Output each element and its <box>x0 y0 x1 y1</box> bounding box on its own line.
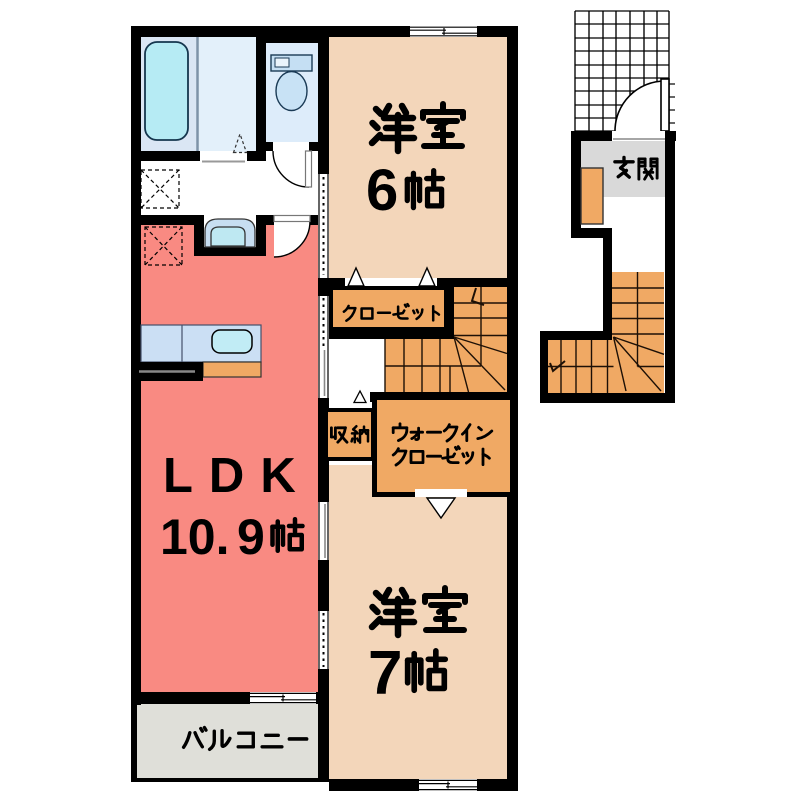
svg-text:9: 9 <box>237 509 265 565</box>
svg-text:6: 6 <box>366 158 398 223</box>
svg-text:7: 7 <box>368 639 402 708</box>
svg-text:10.: 10. <box>160 509 230 565</box>
svg-text:LDK: LDK <box>163 449 312 503</box>
